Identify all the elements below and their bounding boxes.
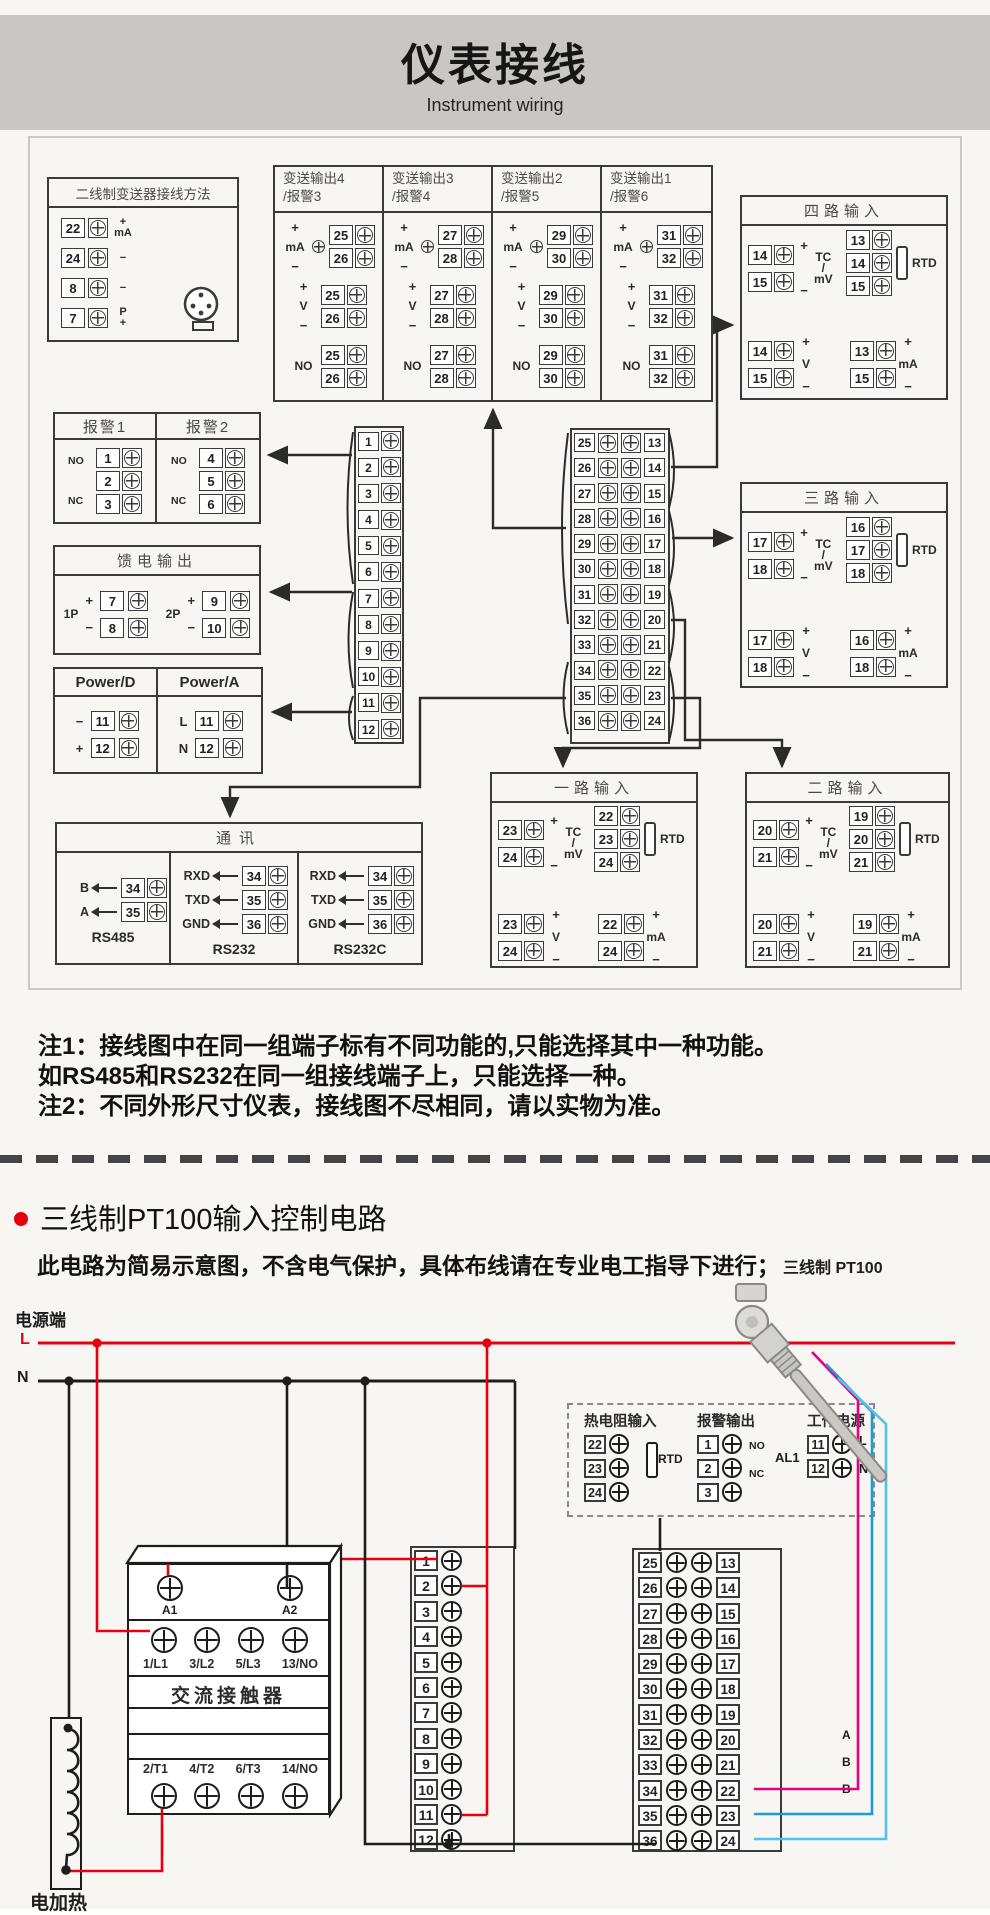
terminal-row: 11 bbox=[807, 1434, 865, 1454]
screw-terminal-icon bbox=[666, 1552, 687, 1573]
terminal-row: 7 bbox=[414, 1702, 513, 1723]
screw-terminal-icon bbox=[381, 588, 401, 608]
screw-terminal-icon bbox=[624, 941, 644, 961]
v-output-group: +V− 29 30 bbox=[493, 281, 600, 331]
screw-terminal-icon bbox=[441, 1677, 462, 1698]
ma-output-group: +mA− 25 26 bbox=[275, 222, 382, 272]
comm-caption: RS232 bbox=[213, 941, 256, 957]
left-arrow-icon bbox=[340, 923, 364, 925]
left-arrow-icon bbox=[93, 887, 117, 889]
screw-terminal-icon bbox=[774, 630, 794, 650]
screw-terminal-icon bbox=[441, 1652, 462, 1673]
terminal-row: 12 bbox=[414, 1829, 513, 1850]
screw-terminal-icon bbox=[691, 1754, 712, 1775]
screw-terminal-icon bbox=[598, 610, 618, 630]
left-arrow-icon bbox=[93, 911, 117, 913]
box-title: 二线制变送器接线方法 bbox=[49, 179, 237, 208]
screw-terminal-icon bbox=[620, 852, 640, 872]
wire-b2-label: B bbox=[842, 1782, 851, 1796]
screw-terminal-icon bbox=[282, 1783, 308, 1809]
screw-terminal-icon bbox=[88, 248, 108, 268]
box-title: 通讯 bbox=[57, 824, 421, 853]
page-title: 仪表接线 bbox=[401, 29, 589, 93]
screw-terminal-icon bbox=[879, 914, 899, 934]
screw-terminal-icon bbox=[774, 341, 794, 361]
terminal-row: 3422 bbox=[638, 1780, 780, 1801]
screw-terminal-icon bbox=[456, 345, 476, 365]
terminal-row: 7 bbox=[358, 587, 402, 609]
screw-terminal-icon bbox=[225, 448, 245, 468]
screw-terminal-icon bbox=[381, 614, 401, 634]
meter-icon bbox=[640, 240, 653, 253]
transmitter-column: +mA− 29 30 +V− 29 30 bbox=[493, 213, 602, 400]
screw-terminal-icon bbox=[119, 738, 139, 758]
instrument-terminal-dashed-box: 热电阻输入 222324 RTD 报警输出 123 NO NC AL1 工作电源… bbox=[567, 1403, 875, 1517]
power-d-terminals: −11+12 bbox=[55, 697, 156, 772]
terminal-row: 3321 bbox=[638, 1754, 780, 1775]
terminal-row: 5 bbox=[358, 535, 402, 557]
screw-terminal-icon bbox=[147, 878, 167, 898]
screw-terminal-icon bbox=[394, 914, 414, 934]
screw-terminal-icon bbox=[621, 635, 641, 655]
page-header: 仪表接线 Instrument wiring bbox=[0, 15, 990, 130]
terminal-row: 2816 bbox=[638, 1628, 780, 1649]
transmitter-column-headers: 变送输出4 /报警3 变送输出3 /报警4 变送输出2 /报警5 变送输出1 /… bbox=[275, 167, 711, 213]
screw-terminal-icon bbox=[151, 1627, 177, 1653]
alarm-output-group: 报警输出 123 NO NC AL1 bbox=[697, 1410, 755, 1506]
screw-terminal-icon bbox=[598, 458, 618, 478]
lower-terminal-strip-mid: 123456789101112 bbox=[410, 1546, 515, 1852]
v-output-group: +V− 27 28 bbox=[384, 281, 491, 331]
screw-terminal-icon bbox=[691, 1653, 712, 1674]
screw-terminal-icon bbox=[722, 1482, 742, 1502]
terminal-row: 9 bbox=[414, 1753, 513, 1774]
terminal-row: 4 bbox=[414, 1626, 513, 1647]
contact-label: 6/T3 bbox=[236, 1762, 261, 1776]
screw-terminal-icon bbox=[691, 1830, 712, 1851]
screw-terminal-icon bbox=[456, 285, 476, 305]
terminal-row: 2917 bbox=[638, 1653, 780, 1674]
four-channel-input-box: 四路输入 14 15 +− TC/mV 13 14 15 RTD bbox=[740, 195, 948, 400]
contact-label: 4/T2 bbox=[189, 1762, 214, 1776]
resistor-icon bbox=[646, 1442, 658, 1478]
note-line-2: 如RS485和RS232在同一组接线端子上，只能选择一种。 bbox=[38, 1062, 958, 1092]
box-title: 馈电输出 bbox=[55, 547, 259, 576]
neutral-line-label: N bbox=[17, 1369, 29, 1387]
box-title: 四路输入 bbox=[742, 197, 946, 226]
resistor-icon bbox=[899, 822, 911, 856]
screw-terminal-icon bbox=[621, 508, 641, 528]
screw-terminal-icon bbox=[875, 829, 895, 849]
screw-terminal-icon bbox=[666, 1653, 687, 1674]
alarm-terminals: 123 bbox=[697, 1434, 755, 1502]
note-line-3: 注2：不同外形尺寸仪表，接线图不尽相同，请以实物为准。 bbox=[38, 1092, 958, 1122]
screw-terminal-icon bbox=[282, 1627, 308, 1653]
screw-terminal-icon bbox=[872, 230, 892, 250]
terminal-row: 3220 bbox=[574, 609, 668, 630]
screw-terminal-icon bbox=[128, 618, 148, 638]
polarity-label: − bbox=[111, 283, 135, 294]
power-terminals: 1112 bbox=[807, 1434, 865, 1478]
red-bullet-icon bbox=[14, 1212, 28, 1226]
screw-terminal-icon bbox=[381, 667, 401, 687]
screw-terminal-icon bbox=[381, 483, 401, 503]
resistor-icon bbox=[896, 246, 908, 280]
comm-row: TXD35 bbox=[180, 890, 288, 910]
transmitter-column-bodies: +mA− 25 26 +V− 25 26 bbox=[275, 213, 711, 400]
screw-terminal-icon bbox=[624, 914, 644, 934]
screw-terminal-icon bbox=[456, 308, 476, 328]
screw-terminal-icon bbox=[598, 635, 618, 655]
screw-terminal-icon bbox=[598, 483, 618, 503]
screw-terminal-icon bbox=[876, 341, 896, 361]
screw-terminal-icon bbox=[666, 1729, 687, 1750]
screw-terminal-icon bbox=[441, 1550, 462, 1571]
screw-terminal-icon bbox=[875, 852, 895, 872]
screw-terminal-icon bbox=[347, 368, 367, 388]
screw-terminal-icon bbox=[565, 345, 585, 365]
screw-terminal-icon bbox=[621, 483, 641, 503]
screw-terminal-icon bbox=[609, 1434, 629, 1454]
ma-output-group: +mA− 27 28 bbox=[384, 222, 491, 272]
terminal-row: 12 bbox=[358, 718, 402, 740]
feed-1p-terminals: +7−8 bbox=[82, 591, 148, 638]
screw-terminal-icon bbox=[394, 890, 414, 910]
terminal-row: 3422 bbox=[574, 660, 668, 681]
screw-terminal-icon bbox=[872, 276, 892, 296]
screw-terminal-icon bbox=[194, 1783, 220, 1809]
screw-terminal-icon bbox=[621, 711, 641, 731]
screw-terminal-icon bbox=[441, 1804, 462, 1825]
comm-row: A35 bbox=[59, 902, 167, 922]
screw-terminal-icon bbox=[441, 1601, 462, 1622]
screw-terminal-icon bbox=[621, 534, 641, 554]
screw-terminal-icon bbox=[122, 448, 142, 468]
terminal-row: 3 bbox=[358, 482, 402, 504]
screw-terminal-icon bbox=[621, 458, 641, 478]
transmitter-column: +mA− 25 26 +V− 25 26 bbox=[275, 213, 384, 400]
notes-block: 注1：接线图中在同一组端子标有不同功能的,只能选择其中一种功能。 如RS485和… bbox=[38, 1032, 958, 1122]
screw-terminal-icon bbox=[119, 711, 139, 731]
screw-terminal-icon bbox=[666, 1603, 687, 1624]
terminal-row: 11 bbox=[358, 692, 402, 714]
signal-label: mA bbox=[111, 228, 135, 239]
terminal-row: 2513 bbox=[574, 432, 668, 453]
screw-terminal-icon bbox=[573, 225, 593, 245]
box-title: 三路输入 bbox=[742, 484, 946, 513]
screw-terminal-icon bbox=[691, 1805, 712, 1826]
screw-terminal-icon bbox=[355, 248, 375, 268]
terminal-row: 2 bbox=[697, 1458, 755, 1478]
v-output-group: +V− 31 32 bbox=[602, 281, 711, 331]
ma-output-group: +mA− 29 30 bbox=[493, 222, 600, 272]
signal-label: + bbox=[111, 318, 135, 329]
screw-terminal-icon bbox=[441, 1626, 462, 1647]
terminal-strip-left: 123456789101112 bbox=[354, 426, 404, 744]
section-subheading: 此电路为简易示意图，不含电气保护，具体布线请在专业电工指导下进行； bbox=[37, 1249, 780, 1281]
screw-terminal-icon bbox=[598, 584, 618, 604]
screw-terminal-icon bbox=[524, 941, 544, 961]
screw-terminal-icon bbox=[223, 738, 243, 758]
terminal-row: 24 bbox=[584, 1482, 657, 1502]
one-channel-input-box: 一路输入 23 24 +− TC/mV 22 23 24 RTD bbox=[490, 772, 698, 968]
meter-icon bbox=[421, 240, 434, 253]
screw-terminal-icon bbox=[238, 1783, 264, 1809]
left-arrow-icon bbox=[340, 899, 364, 901]
contactor-title: 交流接触器 bbox=[129, 1681, 328, 1708]
polarity-label: − bbox=[111, 253, 135, 264]
electric-heater bbox=[50, 1717, 82, 1890]
screw-terminal-icon bbox=[779, 941, 799, 961]
screw-terminal-icon bbox=[691, 1780, 712, 1801]
screw-terminal-icon bbox=[394, 866, 414, 886]
screw-terminal-icon bbox=[666, 1780, 687, 1801]
rs232c-rows: RXD34TXD35GND36 bbox=[306, 862, 414, 938]
screw-terminal-icon bbox=[872, 253, 892, 273]
screw-terminal-icon bbox=[683, 248, 703, 268]
screw-terminal-icon bbox=[381, 431, 401, 451]
column-header: 变送输出2 /报警5 bbox=[493, 167, 602, 211]
transmitter-column: +mA− 27 28 +V− 27 28 bbox=[384, 213, 493, 400]
screw-terminal-icon bbox=[691, 1603, 712, 1624]
screw-terminal-icon bbox=[722, 1458, 742, 1478]
screw-terminal-icon bbox=[779, 820, 799, 840]
screw-terminal-icon bbox=[872, 540, 892, 560]
two-channel-input-box: 二路输入 20 21 +− TC/mV 19 20 21 RTD bbox=[745, 772, 950, 968]
rs232-rows: RXD34TXD35GND36 bbox=[180, 862, 288, 938]
terminal-row: 2715 bbox=[638, 1603, 780, 1624]
screw-terminal-icon bbox=[464, 225, 484, 245]
box-title: Power/A bbox=[158, 669, 261, 697]
screw-terminal-icon bbox=[122, 494, 142, 514]
two-wire-transmitter-box: 二线制变送器接线方法 22 +mA 24 − 8 − bbox=[47, 177, 239, 342]
screw-terminal-icon bbox=[347, 345, 367, 365]
work-power-group: 工作电源 1112 L N bbox=[807, 1410, 865, 1482]
screw-terminal-icon bbox=[565, 308, 585, 328]
terminal-row: 8 bbox=[358, 613, 402, 635]
screw-terminal-icon bbox=[683, 225, 703, 245]
terminal-row: 5 bbox=[414, 1652, 513, 1673]
terminal-row: 3624 bbox=[574, 710, 668, 731]
screw-terminal-icon bbox=[122, 471, 142, 491]
round-connector-icon bbox=[177, 280, 225, 332]
terminal-row: 10 bbox=[414, 1779, 513, 1800]
terminal-number: 7 bbox=[61, 308, 85, 328]
screw-terminal-icon bbox=[872, 517, 892, 537]
screw-terminal-icon bbox=[774, 368, 794, 388]
screw-terminal-icon bbox=[774, 657, 794, 677]
screw-terminal-icon bbox=[225, 494, 245, 514]
screw-terminal-icon bbox=[441, 1829, 462, 1850]
screw-terminal-icon bbox=[774, 272, 794, 292]
screw-terminal-icon bbox=[774, 532, 794, 552]
feed-output-box: 馈电输出 1P +7−8 2P +9−10 bbox=[53, 545, 261, 655]
wire-b1-label: B bbox=[842, 1755, 851, 1769]
section-heading: 三线制PT100输入控制电路 bbox=[40, 1196, 386, 1238]
pt100-label: 三线制 PT100 bbox=[783, 1254, 883, 1278]
terminal-row: 22 +mA bbox=[61, 213, 237, 243]
screw-terminal-icon bbox=[355, 225, 375, 245]
alarm-label: /报警6 bbox=[610, 188, 711, 206]
screw-terminal-icon bbox=[774, 559, 794, 579]
screw-terminal-icon bbox=[875, 806, 895, 826]
power-a-terminals: L11N12 bbox=[158, 697, 261, 772]
ma-output-group: +mA− 31 32 bbox=[602, 222, 711, 272]
box-title: 一路输入 bbox=[492, 774, 696, 803]
screw-terminal-icon bbox=[524, 847, 544, 867]
comm-row: GND36 bbox=[180, 914, 288, 934]
three-channel-input-box: 三路输入 17 18 +− TC/mV 16 17 18 RTD bbox=[740, 482, 948, 688]
terminal-row: 4 bbox=[358, 509, 402, 531]
screw-terminal-icon bbox=[832, 1458, 852, 1478]
screw-terminal-icon bbox=[573, 248, 593, 268]
transmitter-output-box: 变送输出4 /报警3 变送输出3 /报警4 变送输出2 /报警5 变送输出1 /… bbox=[273, 165, 713, 402]
screw-terminal-icon bbox=[598, 685, 618, 705]
screw-terminal-icon bbox=[666, 1577, 687, 1598]
rs485-rows: B34A35 bbox=[59, 874, 167, 926]
terminal-row: 3523 bbox=[638, 1805, 780, 1826]
a2-label: A2 bbox=[282, 1603, 297, 1617]
alarm2-terminals: 456 bbox=[199, 448, 245, 514]
relay-no-group: NO 27 28 bbox=[384, 341, 491, 391]
group-label: 1P bbox=[64, 607, 79, 621]
v-output-group: +V− 25 26 bbox=[275, 281, 382, 331]
screw-terminal-icon bbox=[675, 308, 695, 328]
terminal-row: 8 bbox=[414, 1728, 513, 1749]
column-header: 变送输出3 /报警4 bbox=[384, 167, 493, 211]
screw-terminal-icon bbox=[598, 711, 618, 731]
output-label: 变送输出4 bbox=[283, 170, 382, 188]
output-label: 变送输出1 bbox=[610, 170, 711, 188]
screw-terminal-icon bbox=[441, 1779, 462, 1800]
left-arrow-icon bbox=[214, 875, 238, 877]
terminal-row: 24 − bbox=[61, 243, 237, 273]
transmitter-column: +mA− 31 32 +V− 31 32 bbox=[602, 213, 711, 400]
screw-terminal-icon bbox=[524, 914, 544, 934]
contactor-top-labels: 1/L13/L25/L313/NO bbox=[143, 1657, 318, 1671]
contact-label: 5/L3 bbox=[236, 1657, 261, 1671]
box-title: 报警2 bbox=[157, 414, 259, 440]
screw-terminal-icon bbox=[879, 941, 899, 961]
screw-terminal-icon bbox=[621, 559, 641, 579]
terminal-row: 3119 bbox=[574, 584, 668, 605]
note-line-1: 注1：接线图中在同一组端子标有不同功能的,只能选择其中一种功能。 bbox=[38, 1032, 958, 1062]
relay-no-group: NO 31 32 bbox=[602, 341, 711, 391]
alarm-label: /报警5 bbox=[501, 188, 600, 206]
terminal-row: 11 bbox=[414, 1804, 513, 1825]
screw-terminal-icon bbox=[225, 471, 245, 491]
screw-terminal-icon bbox=[620, 829, 640, 849]
terminal-row: 2715 bbox=[574, 483, 668, 504]
terminal-row: 1 bbox=[414, 1550, 513, 1571]
terminal-row: 6 bbox=[414, 1677, 513, 1698]
screw-terminal-icon bbox=[268, 914, 288, 934]
terminal-row: 1 bbox=[358, 430, 402, 452]
screw-terminal-icon bbox=[598, 534, 618, 554]
page-background: 仪表接线 Instrument wiring 二线制变送器接线方法 22 +mA… bbox=[0, 0, 990, 1909]
screw-terminal-icon bbox=[691, 1552, 712, 1573]
terminal-row: 3220 bbox=[638, 1729, 780, 1750]
comm-caption: RS485 bbox=[92, 929, 135, 945]
terminal-row: 6 bbox=[358, 561, 402, 583]
alarm-label: /报警3 bbox=[283, 188, 382, 206]
screw-terminal-icon bbox=[128, 591, 148, 611]
terminal-row: 3624 bbox=[638, 1830, 780, 1851]
screw-terminal-icon bbox=[666, 1704, 687, 1725]
power-end-label: 电源端 bbox=[15, 1306, 66, 1331]
lower-terminal-strip-right: 2513261427152816291730183119322033213422… bbox=[632, 1548, 782, 1852]
screw-terminal-icon bbox=[666, 1678, 687, 1699]
screw-terminal-icon bbox=[88, 218, 108, 238]
terminal-row: 2816 bbox=[574, 508, 668, 529]
screw-terminal-icon bbox=[565, 285, 585, 305]
contact-label: 1/L1 bbox=[143, 1657, 168, 1671]
screw-terminal-icon bbox=[381, 457, 401, 477]
screw-terminal-icon bbox=[621, 685, 641, 705]
screw-terminal-icon bbox=[691, 1678, 712, 1699]
terminal-row: 10 bbox=[358, 666, 402, 688]
screw-terminal-icon bbox=[441, 1728, 462, 1749]
screw-terminal-icon bbox=[194, 1627, 220, 1653]
resistor-icon bbox=[896, 533, 908, 567]
wire-a-label: A bbox=[842, 1728, 851, 1742]
screw-terminal-icon bbox=[598, 559, 618, 579]
contact-label: 3/L2 bbox=[189, 1657, 214, 1671]
screw-terminal-icon bbox=[88, 278, 108, 298]
screw-terminal-icon bbox=[621, 433, 641, 453]
screw-terminal-icon bbox=[876, 630, 896, 650]
terminal-row: 2 bbox=[414, 1575, 513, 1596]
screw-terminal-icon bbox=[620, 806, 640, 826]
terminal-row: 9 bbox=[358, 640, 402, 662]
column-header: 变送输出1 /报警6 bbox=[602, 167, 711, 211]
terminal-strip-right: 2513261427152816291730183119322033213422… bbox=[570, 428, 670, 744]
screw-terminal-icon bbox=[223, 711, 243, 731]
screw-terminal-icon bbox=[268, 866, 288, 886]
left-arrow-icon bbox=[214, 923, 238, 925]
comm-caption: RS232C bbox=[334, 941, 387, 957]
a1-label: A1 bbox=[162, 1603, 177, 1617]
screw-terminal-icon bbox=[456, 368, 476, 388]
terminal-row: 3018 bbox=[574, 558, 668, 579]
alarm1-terminals: 123 bbox=[96, 448, 142, 514]
contact-label: 13/NO bbox=[282, 1657, 318, 1671]
mains-lines bbox=[38, 1338, 955, 1385]
screw-terminal-icon bbox=[722, 1434, 742, 1454]
screw-terminal-icon bbox=[675, 285, 695, 305]
terminal-number: 22 bbox=[61, 218, 85, 238]
meter-icon bbox=[530, 240, 543, 253]
heater-label: 电加热 bbox=[30, 1888, 87, 1915]
screw-terminal-icon bbox=[381, 510, 401, 530]
screw-terminal-icon bbox=[381, 536, 401, 556]
terminal-number: 24 bbox=[61, 248, 85, 268]
screw-terminal-icon bbox=[347, 285, 367, 305]
screw-terminal-icon bbox=[277, 1575, 303, 1601]
rtd-input-group: 热电阻输入 222324 RTD bbox=[584, 1410, 657, 1506]
resistor-icon bbox=[644, 822, 656, 856]
relay-no-group: NO 29 30 bbox=[493, 341, 600, 391]
terminal-row: 12 bbox=[807, 1458, 865, 1478]
contactor-bottom-labels: 2/T14/T26/T314/NO bbox=[143, 1762, 318, 1776]
alarm-box: 报警1 NONC 123 报警2 NONC 456 bbox=[53, 412, 261, 524]
screw-terminal-icon bbox=[666, 1628, 687, 1649]
box-title: 二路输入 bbox=[747, 774, 948, 803]
contact-label: 14/NO bbox=[282, 1762, 318, 1776]
left-arrow-icon bbox=[214, 899, 238, 901]
box-title: 报警1 bbox=[55, 414, 155, 440]
terminal-row: 3119 bbox=[638, 1704, 780, 1725]
